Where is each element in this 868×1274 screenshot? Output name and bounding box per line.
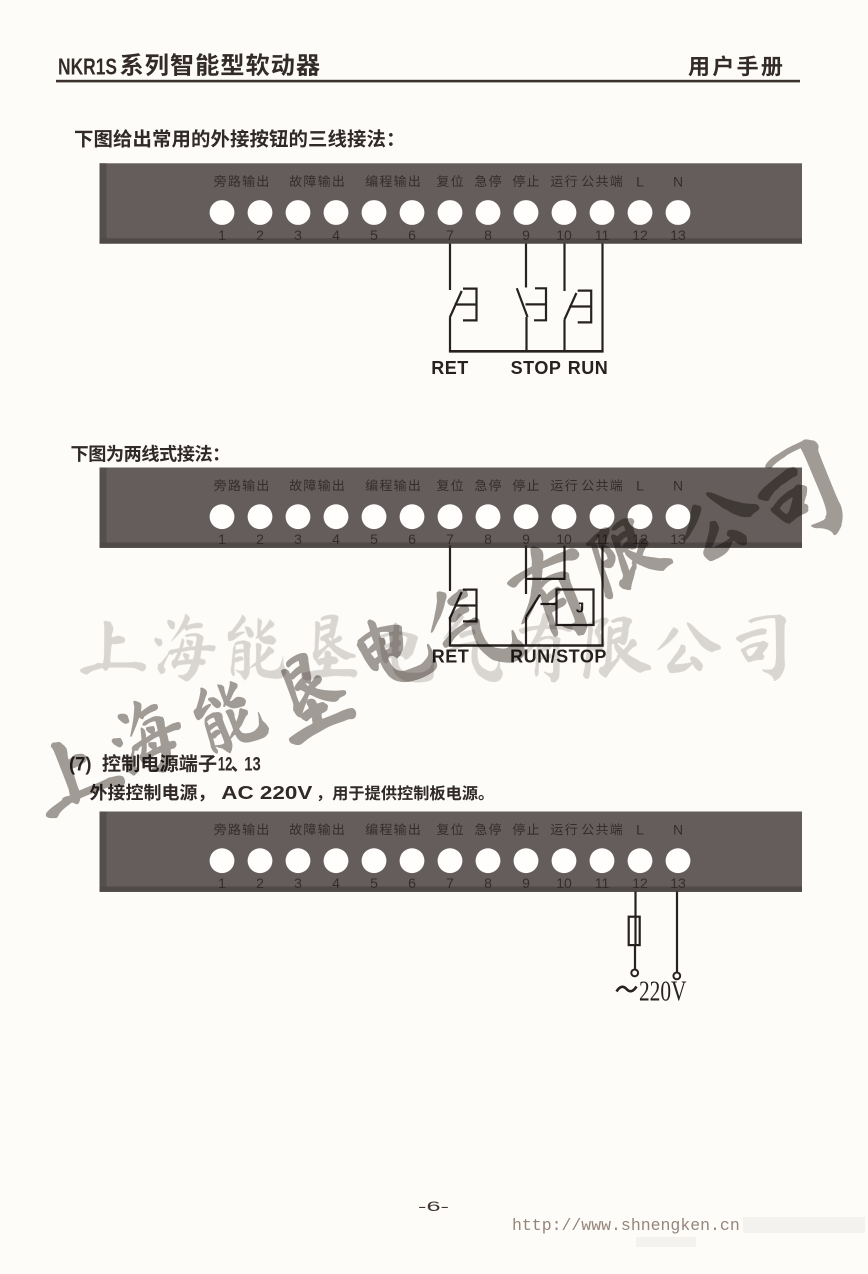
svg-text:13: 13 bbox=[670, 227, 686, 243]
svg-text:3: 3 bbox=[294, 531, 302, 547]
svg-text:-6-: -6- bbox=[418, 1198, 450, 1214]
svg-text:12: 12 bbox=[632, 875, 648, 891]
svg-text:L: L bbox=[636, 478, 644, 494]
svg-text:4: 4 bbox=[332, 227, 340, 243]
svg-text:9: 9 bbox=[522, 875, 530, 891]
svg-text:3: 3 bbox=[294, 875, 302, 891]
svg-text:10: 10 bbox=[556, 227, 572, 243]
svg-text:2: 2 bbox=[256, 227, 264, 243]
svg-text:RET: RET bbox=[431, 358, 469, 378]
svg-text:AC 220V: AC 220V bbox=[221, 783, 312, 803]
svg-text:NKR1S: NKR1S bbox=[58, 54, 117, 80]
svg-text:7: 7 bbox=[446, 227, 454, 243]
svg-text:9: 9 bbox=[522, 531, 530, 547]
svg-text:8: 8 bbox=[484, 531, 492, 547]
svg-text:N: N bbox=[673, 478, 683, 494]
svg-text:1: 1 bbox=[218, 227, 226, 243]
svg-text:N: N bbox=[673, 822, 683, 838]
svg-text:12: 12 bbox=[218, 755, 233, 776]
svg-text:10: 10 bbox=[556, 531, 572, 547]
svg-text:7: 7 bbox=[446, 875, 454, 891]
svg-text:1: 1 bbox=[218, 531, 226, 547]
svg-text:N: N bbox=[673, 174, 683, 190]
svg-text:10: 10 bbox=[556, 875, 572, 891]
svg-text:3: 3 bbox=[294, 227, 302, 243]
svg-text:RUN: RUN bbox=[568, 358, 609, 378]
svg-text:L: L bbox=[636, 174, 644, 190]
svg-text:2: 2 bbox=[256, 875, 264, 891]
svg-text:11: 11 bbox=[595, 875, 610, 891]
svg-text:STOP: STOP bbox=[511, 358, 562, 378]
svg-text:13: 13 bbox=[670, 875, 686, 891]
svg-text:6: 6 bbox=[408, 875, 416, 891]
svg-text:L: L bbox=[636, 822, 644, 838]
svg-text:1: 1 bbox=[218, 875, 226, 891]
svg-text:8: 8 bbox=[484, 227, 492, 243]
svg-text:5: 5 bbox=[370, 227, 378, 243]
svg-text:12: 12 bbox=[632, 227, 648, 243]
svg-text:5: 5 bbox=[370, 531, 378, 547]
svg-text:9: 9 bbox=[522, 227, 530, 243]
svg-text:6: 6 bbox=[408, 531, 416, 547]
svg-text:7: 7 bbox=[446, 531, 454, 547]
svg-text:4: 4 bbox=[332, 531, 340, 547]
svg-text:2: 2 bbox=[256, 531, 264, 547]
svg-text:8: 8 bbox=[484, 875, 492, 891]
svg-text:13: 13 bbox=[244, 755, 261, 776]
svg-text:4: 4 bbox=[332, 875, 340, 891]
svg-text:http://www.shnengken.cn: http://www.shnengken.cn bbox=[512, 1216, 740, 1235]
svg-text:11: 11 bbox=[595, 227, 610, 243]
svg-text:220V: 220V bbox=[639, 977, 687, 1008]
svg-text:13: 13 bbox=[670, 531, 686, 547]
svg-text:6: 6 bbox=[408, 227, 416, 243]
svg-text:5: 5 bbox=[370, 875, 378, 891]
